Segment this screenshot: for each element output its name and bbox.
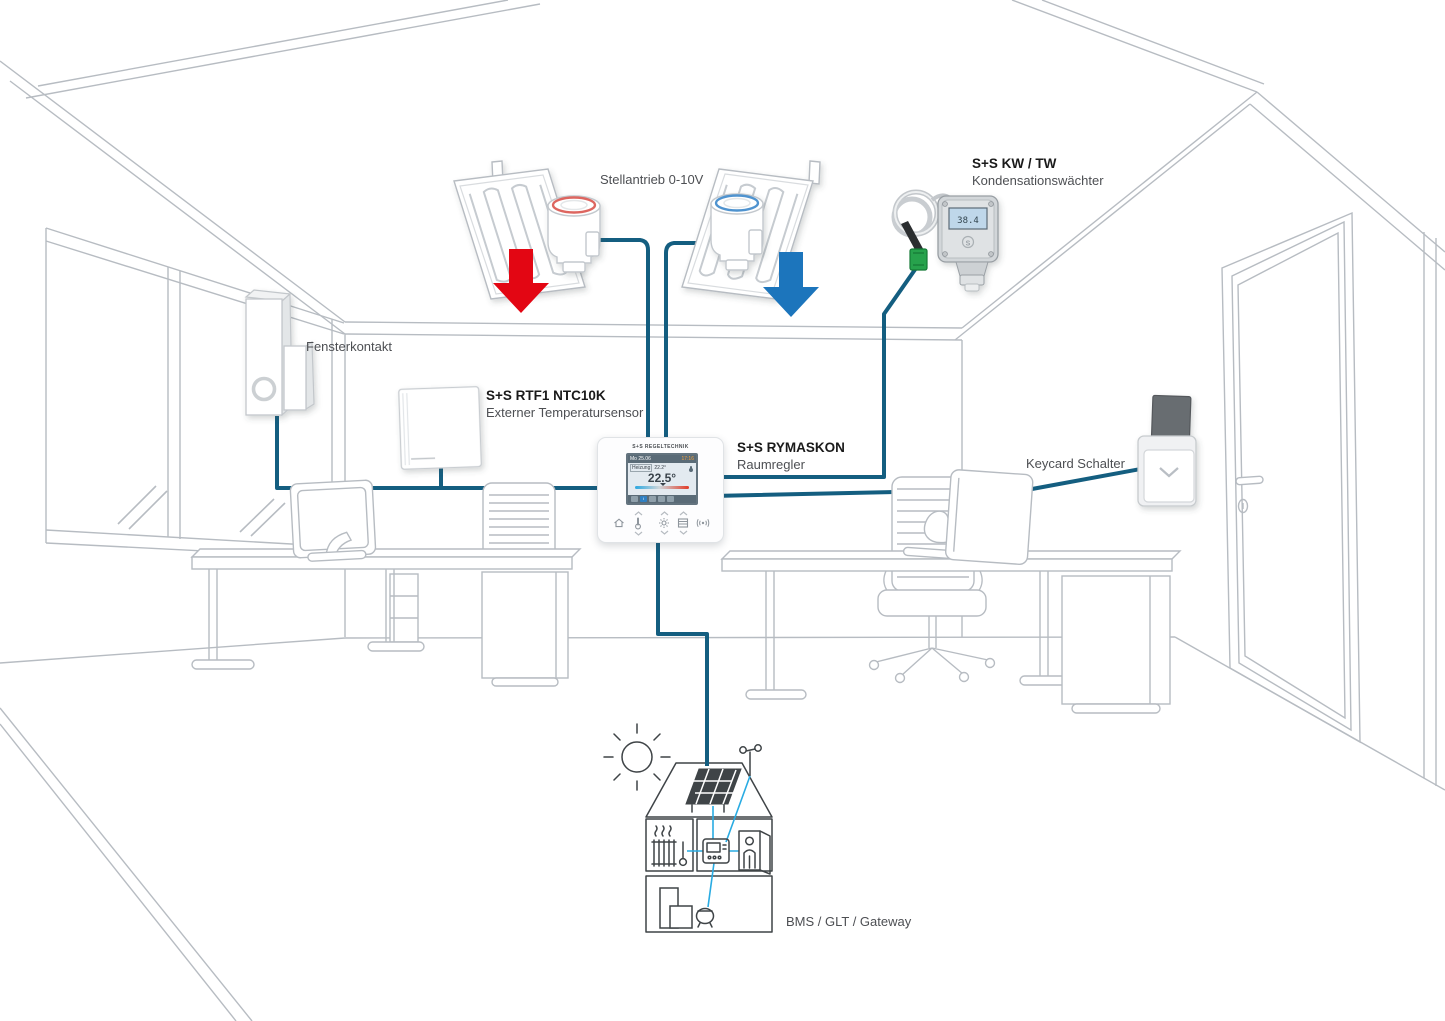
bms-label: BMS / GLT / Gateway — [786, 913, 911, 930]
bms-house — [604, 724, 772, 932]
rymaskon-controller: S+S REGELTECHNIK Mo 25.06 17:16 Heizung … — [597, 437, 724, 543]
kw-tw-subtitle: Kondensationswächter — [972, 172, 1104, 189]
menu-icon — [658, 496, 665, 502]
screen-date: Mo 25.06 — [630, 455, 651, 463]
home-button[interactable] — [613, 517, 625, 529]
rymaskon-title: S+S RYMASKON — [737, 439, 845, 456]
rtf1-subtitle: Externer Temperatursensor — [486, 404, 643, 421]
info-icon: i — [640, 496, 647, 502]
rtf1-sensor — [399, 387, 482, 470]
boiler-icon — [660, 888, 714, 928]
chevron-up-icon — [660, 511, 669, 516]
kw-tw-lcd-value: 38.4 — [957, 216, 979, 226]
screen-menu-bar: i — [628, 495, 696, 503]
mini-controller-icon — [703, 839, 729, 863]
kw-tw-label: S+S KW / TW Kondensationswächter — [972, 155, 1104, 189]
cabinet — [1062, 576, 1170, 713]
menu-icon — [649, 496, 656, 502]
svg-text:S: S — [966, 241, 971, 248]
solar-panel-icon — [686, 769, 741, 812]
door — [1222, 213, 1436, 786]
signal-button[interactable] — [696, 517, 710, 529]
rtf1-label: S+S RTF1 NTC10K Externer Temperatursenso… — [486, 387, 643, 421]
temperature-button[interactable] — [632, 511, 644, 536]
signal-icon — [696, 517, 710, 529]
chevron-down-icon — [634, 531, 643, 536]
kw-tw-title: S+S KW / TW — [972, 155, 1104, 172]
fensterkontakt-label: Fensterkontakt — [306, 338, 392, 355]
window-contact — [246, 290, 314, 415]
controller-buttons — [598, 506, 723, 540]
light-button[interactable] — [658, 511, 670, 535]
person-at-door-icon — [739, 831, 770, 874]
sun-icon — [604, 724, 670, 790]
chevron-up-icon — [634, 511, 643, 516]
menu-icon — [631, 496, 638, 502]
thermometer-icon — [690, 466, 692, 471]
right-workstation — [722, 466, 1180, 713]
door-handle-icon — [1236, 476, 1263, 512]
temperature-slider — [635, 486, 689, 489]
diagram-canvas: 38.4 S Stellantrieb 0-10V — [0, 0, 1445, 1021]
chevron-down-icon — [660, 530, 669, 535]
rymaskon-subtitle: Raumregler — [737, 456, 845, 473]
heating-icon — [652, 826, 686, 866]
stellantrieb-label: Stellantrieb 0-10V — [600, 171, 703, 188]
weather-sensor-icon — [740, 745, 761, 776]
screen-time: 17:16 — [681, 455, 694, 463]
left-workstation — [192, 480, 580, 686]
keycard-label: Keycard Schalter — [1026, 455, 1125, 472]
controller-brand: S+S REGELTECHNIK — [598, 444, 723, 450]
keycard-switch — [1138, 395, 1196, 506]
chevron-down-icon — [679, 530, 688, 535]
controller-screen: Mo 25.06 17:16 Heizung 22.2° 22.5° i — [626, 453, 698, 505]
monitor — [290, 480, 376, 562]
thermometer-icon — [632, 517, 644, 530]
rtf1-title: S+S RTF1 NTC10K — [486, 387, 643, 404]
home-icon — [613, 517, 625, 529]
blinds-button[interactable] — [677, 511, 689, 535]
light-icon — [658, 517, 670, 529]
blinds-icon — [677, 517, 689, 529]
cabinet — [482, 572, 568, 686]
chevron-up-icon — [679, 511, 688, 516]
rymaskon-label: S+S RYMASKON Raumregler — [737, 439, 845, 473]
menu-icon — [667, 496, 674, 502]
